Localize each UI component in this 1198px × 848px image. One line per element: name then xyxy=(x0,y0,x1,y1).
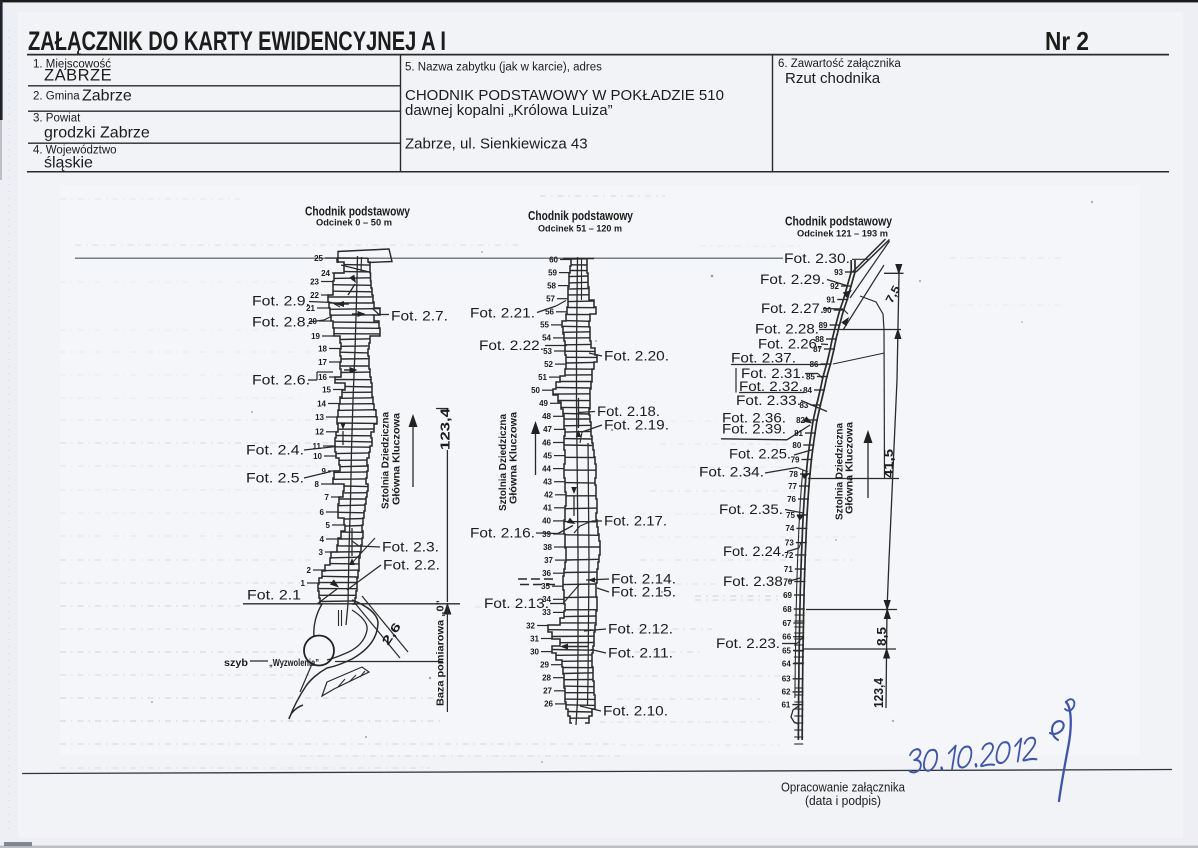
svg-text:Fot. 2.17.: Fot. 2.17. xyxy=(604,514,667,529)
svg-text:Sztolnia Dziedziczna: Sztolnia Dziedziczna xyxy=(834,423,846,520)
svg-text:26: 26 xyxy=(544,700,553,709)
svg-text:Fot. 2.12.: Fot. 2.12. xyxy=(608,622,673,637)
svg-text:Fot. 2.15.: Fot. 2.15. xyxy=(611,585,676,600)
svg-text:3: 3 xyxy=(319,548,324,557)
svg-text:Fot. 2.3.: Fot. 2.3. xyxy=(382,540,439,555)
svg-text:76: 76 xyxy=(787,495,796,504)
svg-text:18: 18 xyxy=(318,344,327,353)
svg-text:77: 77 xyxy=(788,482,797,491)
svg-text:64: 64 xyxy=(782,659,791,668)
svg-text:Fot. 2.19.: Fot. 2.19. xyxy=(604,418,669,433)
svg-text:35: 35 xyxy=(541,582,550,591)
svg-text:Odcinek 0 – 50 m: Odcinek 0 – 50 m xyxy=(316,218,392,229)
svg-text:Fot. 2.16.: Fot. 2.16. xyxy=(470,526,535,541)
svg-text:Odcinek 121 – 193 m: Odcinek 121 – 193 m xyxy=(797,229,888,240)
svg-text:7: 7 xyxy=(325,493,330,502)
svg-text:5. Nazwa zabytku (jak w karcie: 5. Nazwa zabytku (jak w karcie), adres xyxy=(405,62,602,74)
svg-text:Fot. 2.27.: Fot. 2.27. xyxy=(761,301,824,316)
svg-text:śląskie: śląskie xyxy=(44,155,93,172)
svg-text:Zabrze: Zabrze xyxy=(82,88,132,105)
svg-text:41: 41 xyxy=(543,504,552,513)
svg-text:52: 52 xyxy=(544,360,553,369)
svg-text:1: 1 xyxy=(301,579,306,588)
svg-text:51: 51 xyxy=(538,373,547,382)
svg-text:6. Zawartość załącznika: 6. Zawartość załącznika xyxy=(778,58,901,70)
svg-text:2: 2 xyxy=(307,566,312,575)
svg-text:Chodnik podstawowy: Chodnik podstawowy xyxy=(528,208,634,223)
svg-text:Chodnik podstawowy: Chodnik podstawowy xyxy=(305,204,411,219)
svg-text:39: 39 xyxy=(542,530,551,539)
svg-text:4: 4 xyxy=(320,535,325,544)
svg-text:Fot. 2.5.: Fot. 2.5. xyxy=(246,471,304,486)
svg-text:Odcinek 51 – 120 m: Odcinek 51 – 120 m xyxy=(538,224,622,235)
svg-text:67: 67 xyxy=(782,619,791,628)
svg-text:72: 72 xyxy=(784,551,793,560)
svg-text:47: 47 xyxy=(543,425,552,434)
svg-text:Fot. 2.13.: Fot. 2.13. xyxy=(484,596,549,611)
svg-text:46: 46 xyxy=(542,438,551,447)
svg-text:dawnej kopalni „Królowa Luiza”: dawnej kopalni „Królowa Luiza” xyxy=(405,102,613,119)
svg-text:27: 27 xyxy=(543,687,552,696)
svg-text:9: 9 xyxy=(322,467,327,476)
svg-text:Fot. 2.2.: Fot. 2.2. xyxy=(383,558,440,573)
svg-text:Główna Kluczowa: Główna Kluczowa xyxy=(391,413,403,505)
svg-text:Fot. 2.25.: Fot. 2.25. xyxy=(729,447,791,462)
svg-text:16: 16 xyxy=(318,373,327,382)
svg-text:14: 14 xyxy=(317,399,326,408)
svg-text:Fot. 2.7.: Fot. 2.7. xyxy=(391,309,448,324)
svg-text:szyb: szyb xyxy=(224,658,248,669)
svg-text:Fot. 2.29.: Fot. 2.29. xyxy=(760,272,825,287)
svg-text:37: 37 xyxy=(544,556,553,565)
svg-text:2. Gmina: 2. Gmina xyxy=(33,91,80,103)
svg-text:90: 90 xyxy=(823,306,832,315)
svg-text:17: 17 xyxy=(318,358,327,367)
svg-text:Fot. 2.32.: Fot. 2.32. xyxy=(739,379,803,394)
svg-text:Fot. 2.26.: Fot. 2.26. xyxy=(758,337,821,352)
svg-text:22: 22 xyxy=(310,291,319,300)
svg-text:36: 36 xyxy=(542,569,551,578)
svg-text:84: 84 xyxy=(803,386,812,395)
svg-text:„Wyzwolenie”: „Wyzwolenie” xyxy=(269,658,319,669)
svg-text:93: 93 xyxy=(834,268,843,277)
svg-text:Fot. 2.37.: Fot. 2.37. xyxy=(731,351,796,366)
svg-text:3. Powiat: 3. Powiat xyxy=(33,113,81,125)
svg-text:57: 57 xyxy=(546,295,555,304)
svg-text:69: 69 xyxy=(783,591,792,600)
svg-text:(data i podpis): (data i podpis) xyxy=(805,794,881,808)
svg-text:Fot. 2.33.: Fot. 2.33. xyxy=(736,393,801,408)
svg-text:grodzki Zabrze: grodzki Zabrze xyxy=(44,125,150,142)
svg-text:Fot. 2.24.: Fot. 2.24. xyxy=(723,544,785,559)
svg-text:45: 45 xyxy=(543,451,552,460)
svg-text:79: 79 xyxy=(791,455,800,464)
svg-text:44: 44 xyxy=(542,464,551,473)
svg-text:Fot. 2.23.: Fot. 2.23. xyxy=(716,636,780,651)
svg-text:8,5: 8,5 xyxy=(875,627,889,646)
svg-text:Fot. 2.10.: Fot. 2.10. xyxy=(603,704,668,719)
svg-text:29: 29 xyxy=(540,661,549,670)
svg-text:23: 23 xyxy=(310,277,319,286)
svg-text:55: 55 xyxy=(540,321,549,330)
svg-text:91: 91 xyxy=(826,295,835,304)
svg-text:15: 15 xyxy=(322,385,331,394)
svg-text:Chodnik podstawowy: Chodnik podstawowy xyxy=(785,214,893,229)
svg-text:38: 38 xyxy=(543,543,552,552)
svg-text:12: 12 xyxy=(315,428,324,437)
svg-text:ZABRZE: ZABRZE xyxy=(44,67,112,85)
svg-text:48: 48 xyxy=(542,412,551,421)
svg-text:Fot. 2.39.: Fot. 2.39. xyxy=(722,422,786,437)
svg-text:Rzut chodnika: Rzut chodnika xyxy=(785,70,881,87)
svg-text:63: 63 xyxy=(782,675,791,684)
svg-text:42: 42 xyxy=(544,491,553,500)
svg-text:Fot. 2.6.: Fot. 2.6. xyxy=(252,373,310,388)
svg-text:68: 68 xyxy=(783,605,792,614)
svg-text:50: 50 xyxy=(531,386,540,395)
svg-text:Fot. 2.38.: Fot. 2.38. xyxy=(723,574,787,589)
svg-text:58: 58 xyxy=(547,281,556,290)
svg-text:Fot. 2.34.: Fot. 2.34. xyxy=(699,465,764,480)
svg-text:74: 74 xyxy=(785,524,794,533)
svg-text:Baza pomiarowa „0”: Baza pomiarowa „0” xyxy=(435,600,447,706)
svg-text:Zabrze, ul. Sienkiewicza 43: Zabrze, ul. Sienkiewicza 43 xyxy=(405,136,588,153)
svg-text:80: 80 xyxy=(792,441,801,450)
svg-text:Fot. 2.22.: Fot. 2.22. xyxy=(479,338,544,353)
svg-text:60: 60 xyxy=(549,255,558,264)
svg-text:31: 31 xyxy=(530,634,539,643)
svg-text:61: 61 xyxy=(781,700,790,709)
svg-text:43: 43 xyxy=(543,478,552,487)
svg-text:89: 89 xyxy=(819,321,828,330)
svg-text:41,5: 41,5 xyxy=(882,449,896,478)
svg-text:30: 30 xyxy=(530,647,539,656)
svg-text:Fot. 2.8.: Fot. 2.8. xyxy=(252,315,310,330)
svg-text:Nr 2: Nr 2 xyxy=(1045,26,1089,56)
svg-text:8: 8 xyxy=(315,480,320,489)
svg-text:Fot. 2.30.: Fot. 2.30. xyxy=(784,251,850,266)
svg-text:ZAŁĄCZNIK DO KARTY EWIDENCYJNE: ZAŁĄCZNIK DO KARTY EWIDENCYJNEJ A I xyxy=(28,26,446,56)
svg-text:Fot. 2.28.: Fot. 2.28. xyxy=(755,322,819,337)
svg-text:66: 66 xyxy=(782,633,791,642)
svg-text:40: 40 xyxy=(542,517,551,526)
svg-text:Fot. 2.4.: Fot. 2.4. xyxy=(246,443,304,458)
svg-text:24: 24 xyxy=(321,269,330,278)
svg-text:62: 62 xyxy=(782,688,791,697)
svg-text:75: 75 xyxy=(786,511,795,520)
svg-text:5: 5 xyxy=(326,521,331,530)
svg-text:Główna Kluczowa: Główna Kluczowa xyxy=(508,412,520,504)
svg-text:73: 73 xyxy=(785,538,794,547)
svg-text:59: 59 xyxy=(548,268,557,277)
svg-text:53: 53 xyxy=(543,347,552,356)
svg-text:6: 6 xyxy=(320,508,325,517)
svg-text:Fot. 2.1: Fot. 2.1 xyxy=(247,588,301,603)
svg-text:49: 49 xyxy=(539,399,548,408)
svg-text:Opracowanie załącznika: Opracowanie załącznika xyxy=(781,780,906,795)
svg-text:78: 78 xyxy=(789,470,798,479)
svg-text:28: 28 xyxy=(542,674,551,683)
svg-text:Fot. 2.9.: Fot. 2.9. xyxy=(252,294,310,309)
svg-text:Fot. 2.21.: Fot. 2.21. xyxy=(470,306,535,321)
svg-text:123,4: 123,4 xyxy=(872,678,886,708)
svg-text:Fot. 2.20.: Fot. 2.20. xyxy=(604,349,669,364)
svg-text:65: 65 xyxy=(782,646,791,655)
svg-text:10: 10 xyxy=(313,452,322,461)
svg-text:71: 71 xyxy=(784,565,793,574)
svg-text:Fot. 2.35.: Fot. 2.35. xyxy=(719,502,783,517)
svg-text:32: 32 xyxy=(526,621,535,630)
svg-text:Sztolnia Dziedziczna: Sztolnia Dziedziczna xyxy=(497,414,509,511)
svg-text:123,4: 123,4 xyxy=(438,407,453,450)
svg-text:Sztolnia Dziedziczna: Sztolnia Dziedziczna xyxy=(380,412,392,509)
svg-text:25: 25 xyxy=(314,254,323,263)
svg-text:13: 13 xyxy=(315,413,324,422)
svg-text:19: 19 xyxy=(311,332,320,341)
svg-text:Fot. 2.11.: Fot. 2.11. xyxy=(608,646,673,661)
